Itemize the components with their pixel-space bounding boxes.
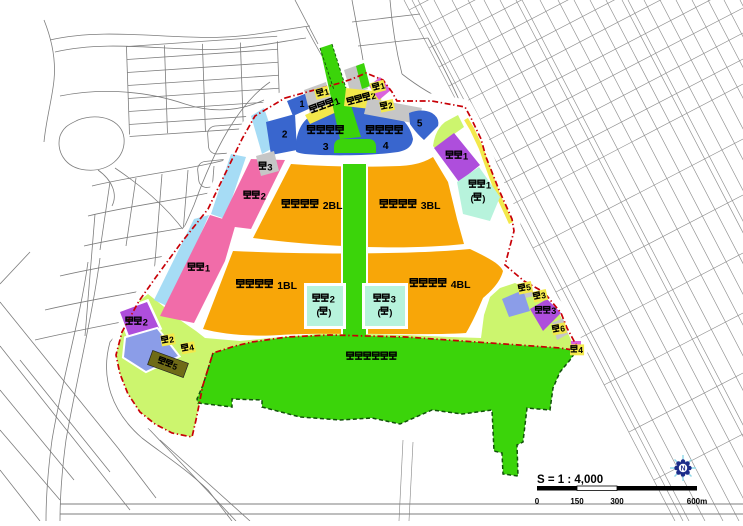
svg-text:2: 2 xyxy=(330,294,335,305)
svg-text:): ) xyxy=(389,307,392,318)
svg-text:1: 1 xyxy=(205,263,211,274)
svg-text:2BL: 2BL xyxy=(323,200,343,212)
svg-text:1: 1 xyxy=(300,99,305,109)
svg-text:150: 150 xyxy=(570,497,584,506)
svg-text:S = 1 : 4,000: S = 1 : 4,000 xyxy=(537,474,603,486)
svg-text:3: 3 xyxy=(551,306,556,316)
svg-text:3BL: 3BL xyxy=(421,200,441,212)
svg-text:300: 300 xyxy=(610,497,624,506)
svg-text:0: 0 xyxy=(535,497,540,506)
svg-text:2: 2 xyxy=(143,317,148,328)
svg-text:1: 1 xyxy=(486,180,492,191)
svg-text:4: 4 xyxy=(383,140,389,152)
svg-text:3: 3 xyxy=(323,141,329,153)
svg-text:3: 3 xyxy=(391,294,396,305)
svg-text:1BL: 1BL xyxy=(277,280,297,292)
svg-text:4BL: 4BL xyxy=(451,279,471,291)
svg-text:600m: 600m xyxy=(687,497,707,506)
svg-text:3: 3 xyxy=(267,162,272,173)
svg-text:N: N xyxy=(680,466,685,473)
svg-text:): ) xyxy=(482,193,485,204)
svg-text:): ) xyxy=(328,307,331,318)
svg-text:4: 4 xyxy=(578,345,583,355)
svg-text:2: 2 xyxy=(282,130,288,141)
svg-text:2: 2 xyxy=(261,191,266,202)
svg-text:5: 5 xyxy=(417,119,423,130)
svg-text:1: 1 xyxy=(463,151,469,162)
